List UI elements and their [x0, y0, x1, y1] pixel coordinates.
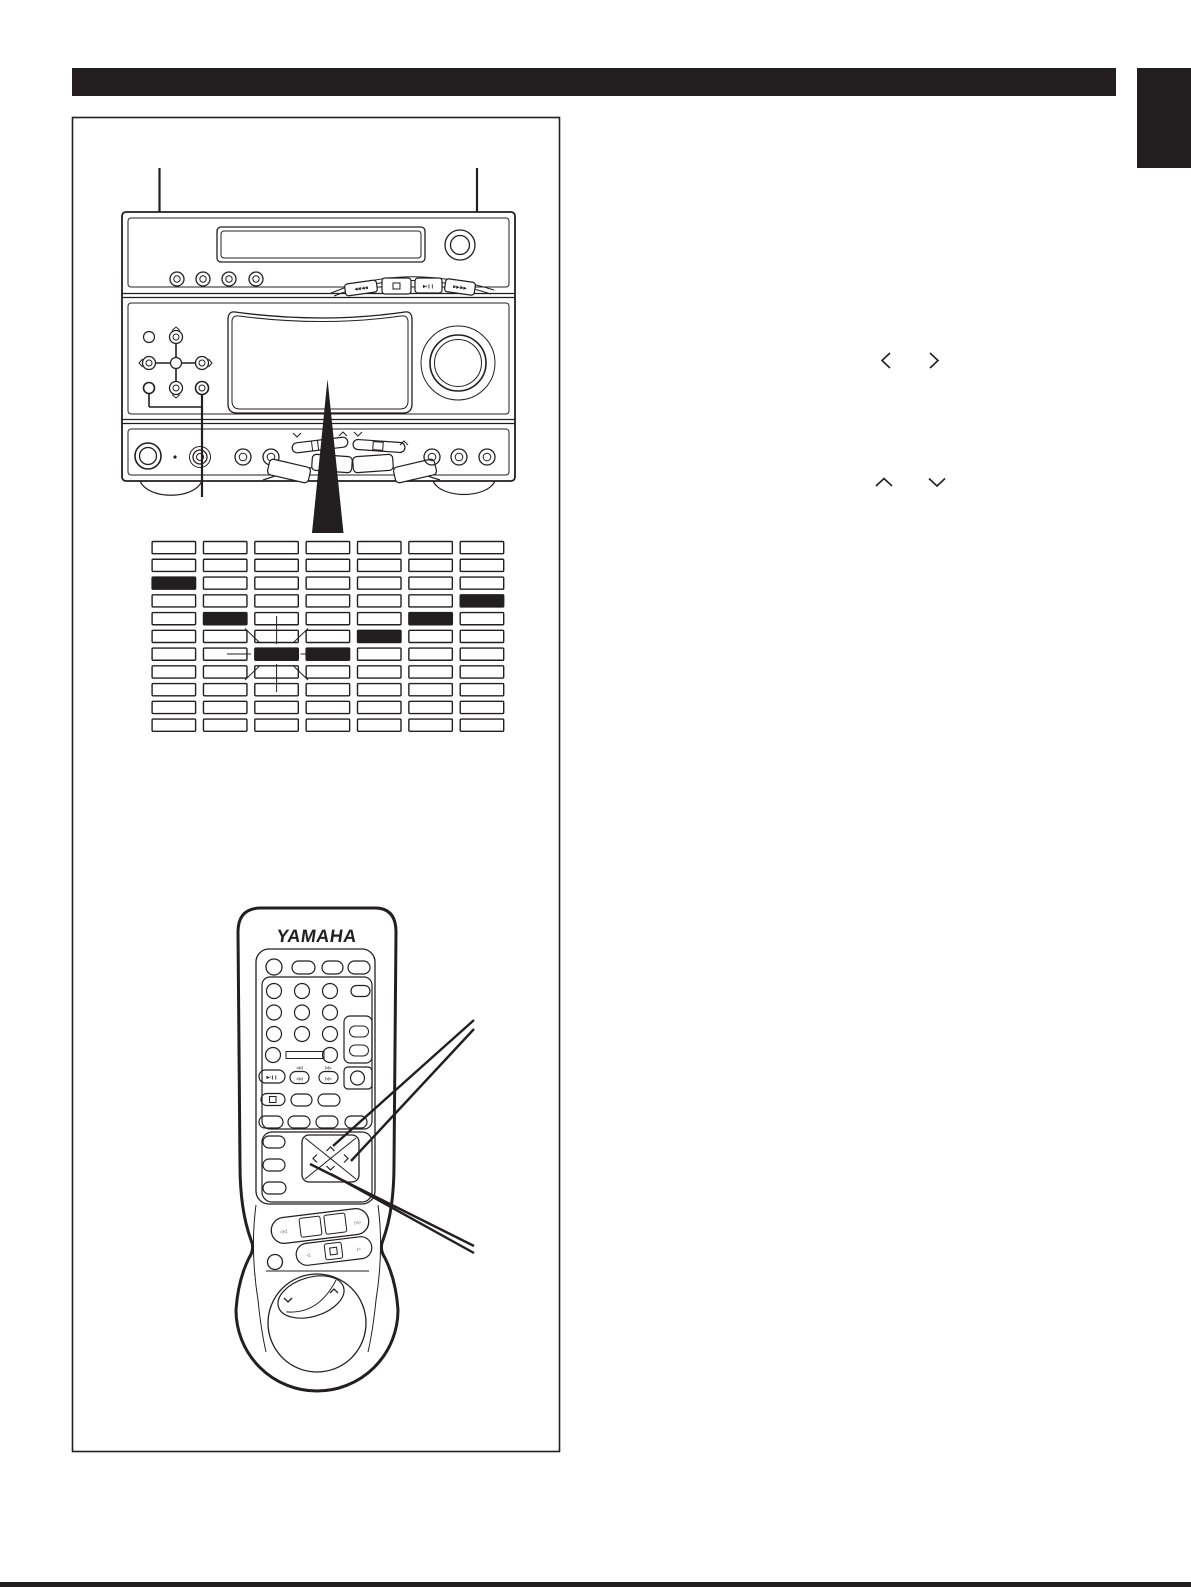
display-grid-cell: [358, 595, 402, 607]
display-grid-cell: [255, 719, 298, 731]
display-grid-cell: [306, 719, 350, 731]
language-tab: [1137, 68, 1191, 168]
display-grid-cell: [203, 666, 247, 678]
display-grid-cell: [409, 577, 453, 589]
display-grid-cell: [409, 542, 453, 554]
display-grid-cell: [358, 542, 402, 554]
display-grid-cell: [358, 666, 402, 678]
display-grid-cell: [152, 542, 196, 554]
svg-text:◁◁: ◁◁: [280, 1229, 288, 1235]
display-grid-cell: [203, 684, 247, 696]
preset-button: [352, 454, 393, 473]
display-grid-cell: [358, 684, 402, 696]
display-grid-cell: [152, 630, 196, 642]
svg-text:▷▷: ▷▷: [324, 1065, 332, 1070]
display-grid-cell: [152, 595, 196, 607]
display-grid-cell: [152, 613, 196, 625]
display-grid-cell: [409, 595, 453, 607]
display-grid-cell: [460, 719, 504, 731]
display-grid-cell: [203, 542, 247, 554]
display-grid-cell: [460, 666, 504, 678]
display-grid-cell: [358, 613, 402, 625]
down-chevron-icon: [929, 479, 945, 487]
display-grid-cell: [306, 630, 350, 642]
display-grid-cell: [255, 542, 298, 554]
display-grid-cell: [306, 684, 350, 696]
footer-rule: [0, 1582, 1191, 1587]
up-chevron-icon: [876, 479, 892, 487]
display-grid-cell: [306, 648, 350, 660]
display-grid-cell: [358, 648, 402, 660]
display-grid-cell: [460, 577, 504, 589]
svg-text:◁◁: ◁◁: [295, 1065, 303, 1070]
display-grid-cell: [306, 559, 350, 571]
display-grid-cell: [152, 684, 196, 696]
display-grid-cell: [203, 630, 247, 642]
manual-page: ◀◀/◀◀ ▶/❙❙ ▶▶/▶▶: [0, 0, 1191, 1587]
display-grid-cell: [152, 577, 196, 589]
front-panel: ◀◀/◀◀ ▶/❙❙ ▶▶/▶▶: [122, 212, 515, 497]
display-grid-cell: [409, 559, 453, 571]
display-grid-cell: [255, 577, 298, 589]
display-grid-cell: [409, 630, 453, 642]
display-grid-cell: [152, 648, 196, 660]
display-grid-cell: [152, 666, 196, 678]
display-grid-cell: [409, 684, 453, 696]
display-grid-cell: [460, 559, 504, 571]
display-grid-cell: [409, 719, 453, 731]
display-grid-cell: [152, 701, 196, 713]
stop-button: [382, 278, 411, 294]
display-grid-cell: [306, 666, 350, 678]
display-grid-cell: [255, 648, 298, 660]
display-grid-cell: [306, 701, 350, 713]
display-grid-cell: [460, 630, 504, 642]
display-grid-cell: [358, 630, 402, 642]
display-grid-cell: [203, 719, 247, 731]
display-grid-cell: [409, 648, 453, 660]
left-chevron-icon: [882, 353, 890, 368]
svg-text:◁◁: ◁◁: [295, 1076, 303, 1081]
display-grid-cell: [203, 595, 247, 607]
display-grid-cell: [306, 542, 350, 554]
display-grid-cell: [152, 559, 196, 571]
header-bar: [72, 68, 1116, 96]
display-grid-cell: [460, 595, 504, 607]
display-grid-cell: [460, 542, 504, 554]
right-chevron-icon: [930, 353, 938, 368]
display-grid-cell: [203, 559, 247, 571]
display-grid-cell: [203, 701, 247, 713]
display-grid-cell: [255, 595, 298, 607]
display-grid-cell: [358, 559, 402, 571]
display-grid-cell: [255, 701, 298, 713]
display-grid: [152, 542, 504, 732]
power-led: [173, 455, 176, 458]
display-grid-cell: [409, 666, 453, 678]
display-grid-cell: [306, 577, 350, 589]
svg-text:▷▷: ▷▷: [354, 1219, 362, 1225]
display-grid-cell: [409, 613, 453, 625]
display-grid-cell: [358, 719, 402, 731]
display-grid-cell: [358, 577, 402, 589]
display-grid-cell: [203, 613, 247, 625]
display-grid-cell: [306, 595, 350, 607]
display-grid-cells: [152, 542, 504, 732]
display-grid-cell: [203, 577, 247, 589]
display-grid-cell: [460, 701, 504, 713]
display-grid-cell: [255, 559, 298, 571]
display-grid-cell: [306, 613, 350, 625]
remote-control: YAMAHA ▶/❙❙ ◁◁ ◁◁ ▷▷: [236, 908, 398, 1391]
play-pause-button: ▶/❙❙: [415, 278, 442, 293]
display-grid-cell: [460, 613, 504, 625]
display-grid-cell: [358, 701, 402, 713]
display-grid-cell: [460, 684, 504, 696]
display-grid-cell: [152, 719, 196, 731]
display-grid-cell: [460, 648, 504, 660]
remote-brand: YAMAHA: [275, 926, 358, 946]
page-chevrons: [876, 353, 945, 486]
svg-text:▷▷: ▷▷: [324, 1076, 332, 1081]
display-grid-cell: [409, 701, 453, 713]
